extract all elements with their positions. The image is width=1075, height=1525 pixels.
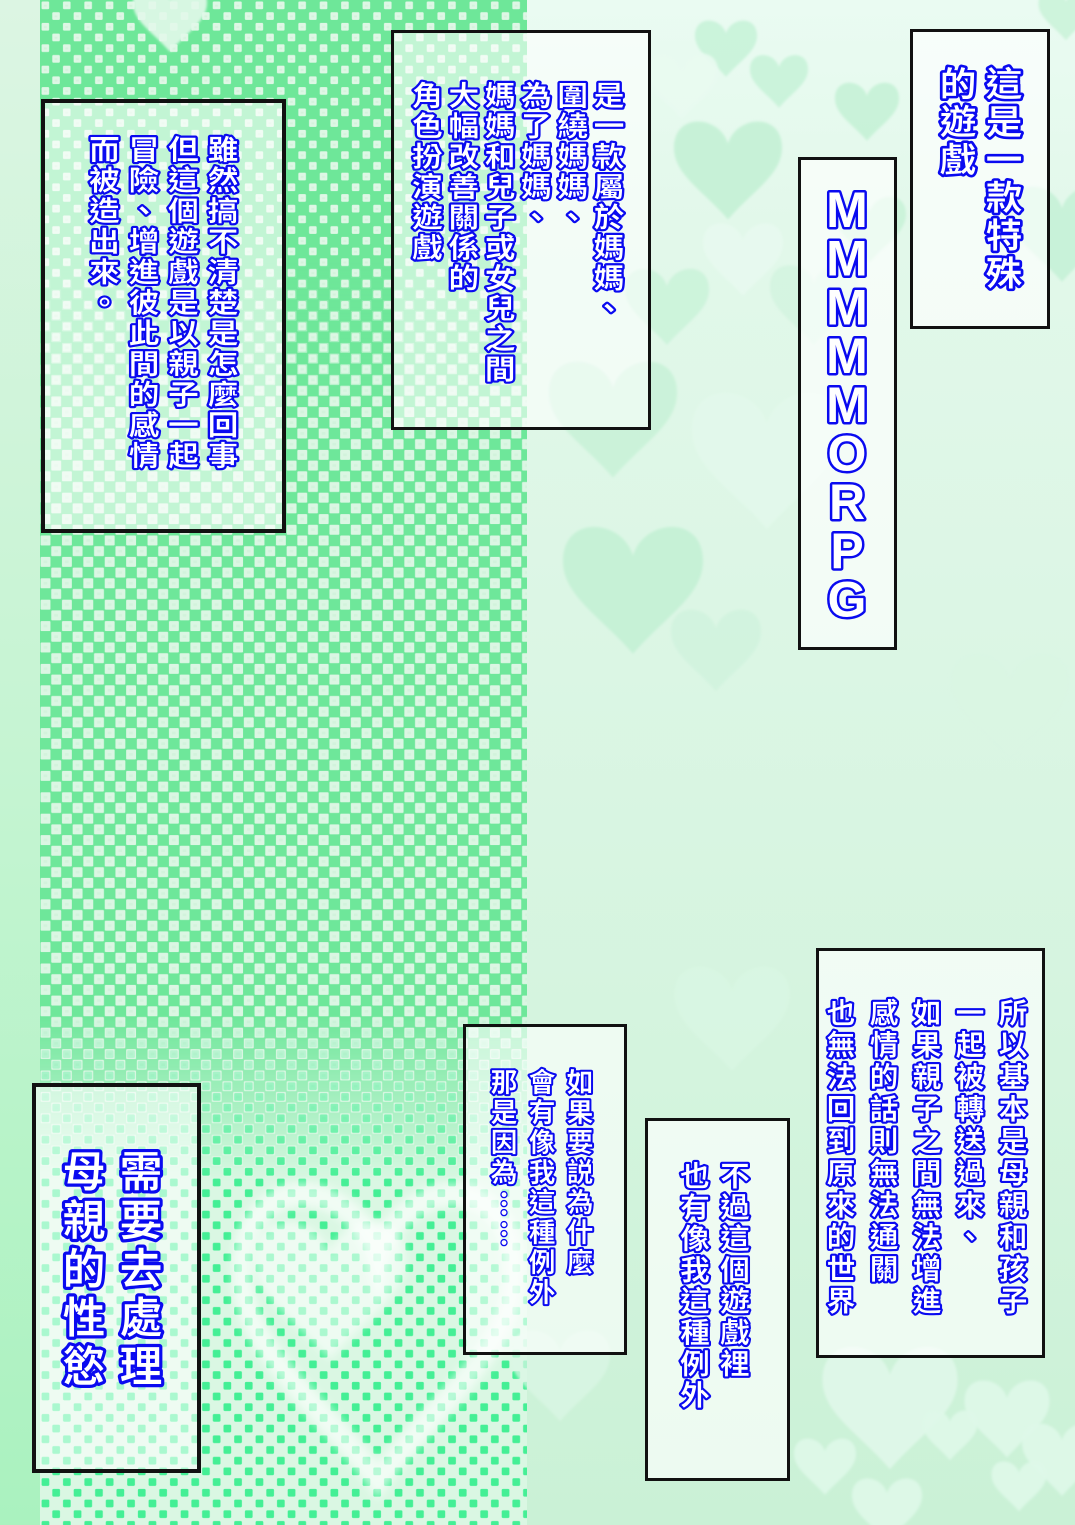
svg-text:P: P (830, 523, 863, 579)
svg-text:M: M (826, 328, 868, 384)
svg-text:M: M (826, 182, 868, 238)
svg-text:G: G (828, 572, 867, 628)
svg-text:M: M (826, 377, 868, 433)
svg-text:R: R (829, 474, 865, 530)
svg-text:M: M (826, 231, 868, 287)
svg-text:O: O (828, 426, 867, 482)
svg-text:M: M (826, 279, 868, 335)
